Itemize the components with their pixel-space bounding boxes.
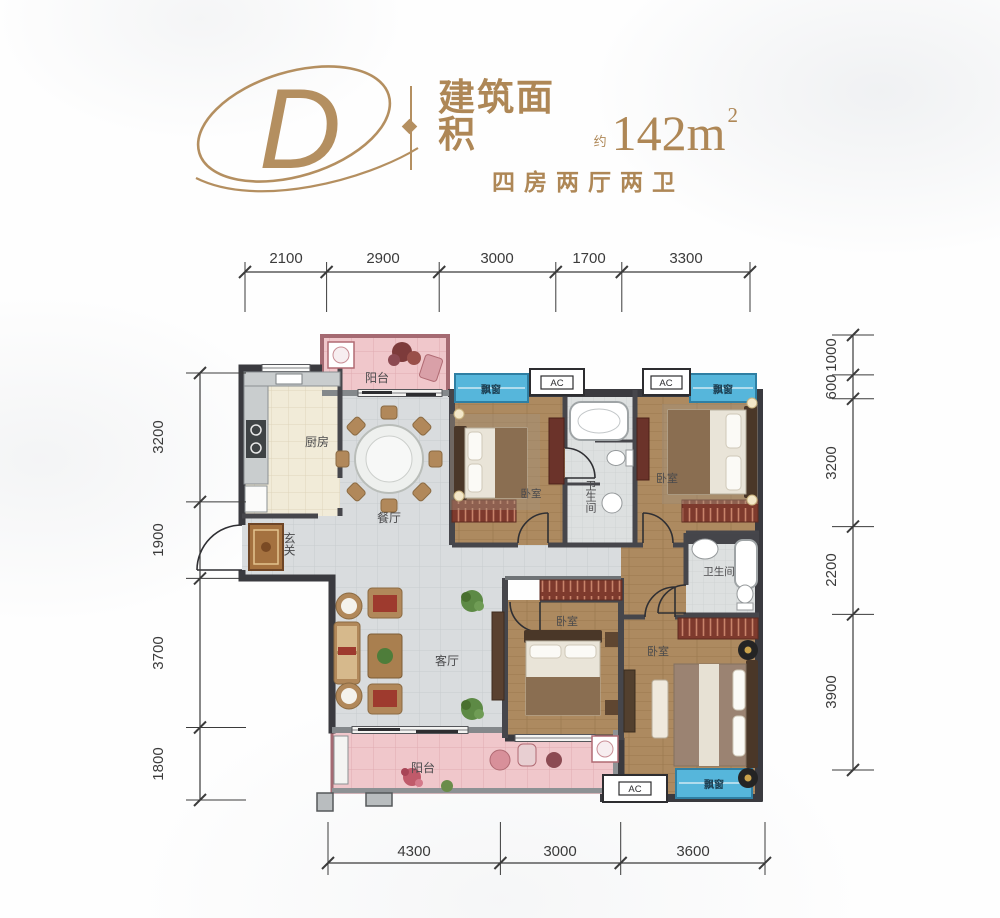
floorplan-page: D 建筑面积 约 142m 2 四房两厅两卫 — [0, 0, 1000, 918]
bathtub-icon — [570, 402, 628, 440]
toilet-icon — [607, 451, 625, 466]
dim-bottom-2: 3000 — [543, 843, 576, 860]
cabinet-icon — [334, 736, 348, 784]
dim-right-4: 2200 — [823, 553, 840, 586]
sink-icon — [602, 493, 622, 513]
lamp-icon — [747, 495, 757, 505]
dim-right-3: 3200 — [823, 446, 840, 479]
living-balcony-slider-window — [352, 727, 468, 734]
ac-unit-top-left: AC — [530, 369, 584, 395]
label-dining: 餐厅 — [377, 510, 401, 525]
dimension-bottom: 4300 3000 3600 — [322, 822, 771, 875]
bay-window-top-right: 飘窗 — [690, 374, 756, 402]
planter-icon — [546, 752, 562, 768]
fridge-icon — [245, 486, 267, 512]
dim-top-5: 3300 — [669, 250, 702, 267]
bottom-stubs — [317, 793, 392, 811]
pouf-icon — [490, 750, 510, 770]
dim-left-2: 1900 — [150, 523, 167, 556]
entry-rug — [249, 524, 283, 570]
dim-right-5: 3900 — [823, 675, 840, 708]
ac-label: AC — [659, 378, 672, 389]
dim-top-2: 2900 — [366, 250, 399, 267]
label-bedroom-mid: 卧室 — [556, 614, 578, 628]
wardrobe-bedroom-master — [678, 618, 758, 639]
dimension-right: 1000 600 3200 2200 3900 — [823, 329, 874, 776]
dim-right-1: 1000 — [823, 338, 840, 371]
dimension-top: 2100 2900 3000 1700 3300 — [239, 250, 756, 312]
floor-plan: 飘窗 飘窗 飘窗 AC AC — [0, 0, 1000, 918]
ac-unit-top-right: AC — [643, 369, 690, 395]
dim-left-1: 3200 — [150, 420, 167, 453]
bay-window-label: 飘窗 — [481, 383, 501, 396]
tv-console-master — [624, 670, 635, 732]
plant-icon — [377, 648, 393, 664]
label-balcony-bottom: 阳台 — [411, 760, 435, 775]
tv-console-living — [492, 612, 504, 700]
bedroom-mid-window — [515, 735, 595, 742]
wardrobe-bedroom-mid — [540, 580, 622, 600]
lamp-icon — [454, 491, 464, 501]
bay-window-top-left: 飘窗 — [455, 374, 528, 402]
dim-right-2: 600 — [823, 374, 840, 399]
dim-bottom-3: 3600 — [676, 843, 709, 860]
label-balcony-top: 阳台 — [365, 370, 389, 385]
label-bedroom-master: 卧室 — [647, 644, 669, 658]
sink-icon — [692, 539, 718, 559]
plant-icon — [441, 780, 453, 792]
bay-window-label: 飘窗 — [713, 383, 733, 396]
label-bedroom-tr: 卧室 — [656, 471, 678, 485]
bedroom-tr-furniture — [662, 398, 758, 505]
nightstand-icon — [605, 700, 618, 715]
entry-door — [197, 525, 242, 570]
dimension-left: 3200 1900 3700 1800 — [150, 367, 246, 806]
dim-top-3: 3000 — [480, 250, 513, 267]
label-entry: 玄关 — [282, 531, 296, 556]
label-bath-mid: 卫生间 — [584, 480, 597, 514]
bay-window-label: 飘窗 — [704, 778, 724, 791]
ac-label: AC — [550, 378, 563, 389]
vase-icon — [518, 744, 536, 766]
ac-unit-bottom: AC — [603, 775, 667, 802]
hallway-floor — [621, 545, 686, 617]
cabinet-bedroom-tr — [637, 418, 649, 480]
ac-label: AC — [628, 784, 641, 795]
dim-left-3: 3700 — [150, 636, 167, 669]
dim-bottom-1: 4300 — [397, 843, 430, 860]
bathtub-icon — [735, 540, 757, 588]
label-kitchen: 厨房 — [305, 434, 329, 449]
label-bedroom-tl: 卧室 — [521, 487, 542, 500]
nightstand-icon — [605, 632, 618, 647]
label-living: 客厅 — [435, 653, 459, 668]
bench-icon — [652, 680, 668, 738]
balcony-top-slider-window — [358, 390, 442, 397]
label-bath-right: 卫生间 — [703, 565, 735, 578]
cabinet-bedroom-tl — [549, 418, 564, 484]
dim-left-4: 1800 — [150, 747, 167, 780]
lamp-icon — [747, 398, 757, 408]
dim-top-1: 2100 — [269, 250, 302, 267]
toilet-icon — [737, 585, 753, 603]
corridor-floor — [452, 545, 621, 578]
lamp-icon — [454, 409, 464, 419]
kitchen-window — [262, 365, 310, 372]
dim-top-4: 1700 — [572, 250, 605, 267]
